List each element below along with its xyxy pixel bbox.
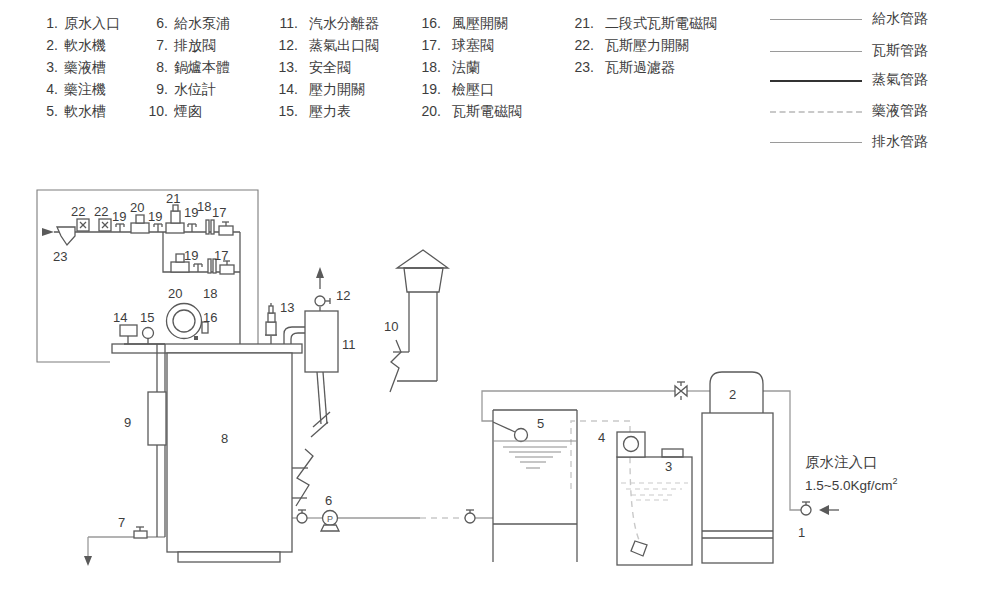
callout-7: 7 bbox=[118, 515, 125, 530]
steam-outlet-valve bbox=[315, 296, 325, 306]
legend-item-label: 二段式瓦斯電磁閥 bbox=[605, 12, 717, 34]
legend-item: 6.給水泵浦 bbox=[138, 12, 230, 34]
callout-20: 20 bbox=[168, 286, 182, 301]
legend-item-number: 6. bbox=[138, 12, 168, 34]
callout-20: 20 bbox=[130, 200, 144, 215]
legend-item: 1.原水入口 bbox=[28, 12, 120, 34]
raw-water-inlet-title: 原水注入口 bbox=[805, 453, 878, 472]
legend-item-number: 1. bbox=[28, 12, 58, 34]
legend-item: 20.瓦斯電磁閥 bbox=[407, 100, 522, 122]
legend-item-label: 藥注機 bbox=[64, 78, 106, 100]
callout-16: 16 bbox=[203, 310, 217, 325]
callout-23: 23 bbox=[53, 249, 67, 264]
legend-item: 23.瓦斯過濾器 bbox=[560, 56, 717, 78]
gas-solenoid-valve bbox=[131, 215, 149, 233]
legend-item-label: 鍋爐本體 bbox=[174, 56, 230, 78]
pressure-gauge bbox=[143, 328, 154, 339]
legend-item: 22.瓦斯壓力開關 bbox=[560, 34, 717, 56]
legend-item: 19.檢壓口 bbox=[407, 78, 522, 100]
legend-item: 3.藥液槽 bbox=[28, 56, 120, 78]
legend-item-number: 13. bbox=[264, 56, 298, 78]
test-port bbox=[194, 264, 202, 272]
legend-item-label: 瓦斯壓力開關 bbox=[605, 34, 689, 56]
legend-item-number: 3. bbox=[28, 56, 58, 78]
callout-18: 18 bbox=[203, 286, 217, 301]
legend-item: 4.藥注機 bbox=[28, 78, 120, 100]
callout-5: 5 bbox=[537, 416, 544, 431]
legend-item-label: 檢壓口 bbox=[452, 78, 494, 100]
legend-item-number: 22. bbox=[560, 34, 594, 56]
callout-3: 3 bbox=[665, 459, 672, 474]
suction-foot-valve bbox=[631, 541, 647, 556]
legend-item: 21.二段式瓦斯電磁閥 bbox=[560, 12, 717, 34]
float-lever bbox=[493, 422, 515, 432]
legend-item-number: 9. bbox=[138, 78, 168, 100]
steam-out-arrow bbox=[316, 267, 324, 278]
chemical-tank bbox=[617, 432, 692, 565]
legend-column: 21.二段式瓦斯電磁閥22.瓦斯壓力開關23.瓦斯過濾器 bbox=[560, 12, 717, 78]
callout-6: 6 bbox=[325, 493, 332, 508]
legend-item: 5.軟水槽 bbox=[28, 100, 120, 122]
callout-8: 8 bbox=[221, 431, 228, 446]
legend-item-label: 法蘭 bbox=[452, 56, 480, 78]
legend-item-label: 煙囪 bbox=[174, 100, 202, 122]
legend-item: 15.壓力表 bbox=[264, 100, 379, 122]
legend-item-number: 17. bbox=[407, 34, 441, 56]
callout-18: 18 bbox=[197, 199, 211, 214]
legend-item-number: 12. bbox=[264, 34, 298, 56]
callout-22: 22 bbox=[71, 204, 85, 219]
callout-2: 2 bbox=[729, 387, 736, 402]
legend-item-label: 水位計 bbox=[174, 78, 216, 100]
boiler-body bbox=[167, 353, 292, 552]
legend-column: 16.風壓開關17.球塞閥18.法蘭19.檢壓口20.瓦斯電磁閥 bbox=[407, 12, 522, 122]
legend-item-number: 18. bbox=[407, 56, 441, 78]
callout-19: 19 bbox=[184, 248, 198, 263]
legend-item: 10.煙囪 bbox=[138, 100, 230, 122]
raw-water-inlet bbox=[801, 502, 839, 515]
gas-inlet-arrow bbox=[42, 228, 54, 236]
test-port bbox=[116, 224, 124, 232]
boiler-piping-diagram-page: P bbox=[0, 0, 981, 612]
legend-item-label: 軟水槽 bbox=[64, 100, 106, 122]
line-legend-label: 瓦斯管路 bbox=[872, 42, 928, 60]
water-level-column bbox=[134, 344, 166, 538]
chemical-line-sample bbox=[770, 111, 862, 113]
legend-item-label: 壓力表 bbox=[309, 100, 351, 122]
callout-15: 15 bbox=[140, 310, 154, 325]
gas-line-sample bbox=[770, 51, 862, 52]
callout-19: 19 bbox=[148, 209, 162, 224]
legend-item-label: 蒸氣出口閥 bbox=[309, 34, 379, 56]
gas-pressure-switch bbox=[77, 219, 89, 231]
callout-14: 14 bbox=[113, 310, 127, 325]
line-legend-label: 排水管路 bbox=[872, 133, 928, 151]
check-valve bbox=[297, 513, 307, 523]
legend-item: 18.法蘭 bbox=[407, 56, 522, 78]
chimney-break bbox=[390, 340, 401, 392]
legend-item-number: 5. bbox=[28, 100, 58, 122]
gas-pressure-switch bbox=[99, 219, 111, 231]
test-port bbox=[154, 224, 162, 232]
callout-10: 10 bbox=[384, 319, 398, 334]
line-legend-label: 蒸氣管路 bbox=[872, 71, 928, 89]
legend-column: 11.汽水分離器12.蒸氣出口閥13.安全閥14.壓力開關15.壓力表 bbox=[264, 12, 379, 122]
callout-4: 4 bbox=[598, 430, 605, 445]
drain-line-sample bbox=[770, 142, 862, 143]
callout-22: 22 bbox=[94, 204, 108, 219]
feed-pump-group: P bbox=[297, 510, 475, 531]
boiler-base bbox=[178, 552, 280, 562]
legend-item: 11.汽水分離器 bbox=[264, 12, 379, 34]
legend-item-label: 汽水分離器 bbox=[309, 12, 379, 34]
steam-line-sample bbox=[770, 80, 862, 82]
feed-valve bbox=[465, 513, 475, 523]
float-ball bbox=[515, 429, 528, 442]
chimney bbox=[390, 250, 448, 392]
inlet-valve bbox=[801, 505, 811, 515]
legend-item-label: 原水入口 bbox=[64, 12, 120, 34]
chemical-dosing-pump bbox=[617, 432, 645, 457]
callout-11: 11 bbox=[342, 337, 356, 352]
legend-item-label: 軟水機 bbox=[64, 34, 106, 56]
legend-item-label: 排放閥 bbox=[174, 34, 216, 56]
legend-item-number: 15. bbox=[264, 100, 298, 122]
legend-item-label: 壓力開關 bbox=[309, 78, 365, 100]
legend-item: 17.球塞閥 bbox=[407, 34, 522, 56]
feedwater-line-sample bbox=[770, 19, 862, 20]
water-softener bbox=[675, 372, 773, 563]
water-level-gauge bbox=[148, 392, 166, 445]
pressure-instruments bbox=[120, 325, 165, 344]
line-legend-label: 藥液管路 bbox=[872, 102, 928, 120]
legend-item-label: 球塞閥 bbox=[452, 34, 494, 56]
boiler bbox=[112, 344, 313, 562]
legend-item-number: 4. bbox=[28, 78, 58, 100]
legend-column: 6.給水泵浦7.排放閥8.鍋爐本體9.水位計10.煙囪 bbox=[138, 12, 230, 122]
inlet-arrow bbox=[819, 505, 829, 515]
legend-item-number: 10. bbox=[138, 100, 168, 122]
line-legend-label: 給水管路 bbox=[872, 10, 928, 28]
legend-item-label: 瓦斯電磁閥 bbox=[452, 100, 522, 122]
soft-water-tank bbox=[493, 410, 577, 562]
pressure-value: 1.5~5.0Kgf/cm bbox=[805, 478, 892, 493]
callout-17: 17 bbox=[214, 248, 228, 263]
legend-item-number: 14. bbox=[264, 78, 298, 100]
callout-19: 19 bbox=[112, 209, 126, 224]
legend-item-number: 7. bbox=[138, 34, 168, 56]
legend-item-label: 給水泵浦 bbox=[174, 12, 230, 34]
globe-valve bbox=[675, 382, 687, 400]
legend-item-label: 安全閥 bbox=[309, 56, 351, 78]
legend-item: 7.排放閥 bbox=[138, 34, 230, 56]
legend-item-number: 20. bbox=[407, 100, 441, 122]
blower bbox=[167, 304, 209, 341]
legend-item: 12.蒸氣出口閥 bbox=[264, 34, 379, 56]
legend-item-number: 21. bbox=[560, 12, 594, 34]
legend-item-label: 藥液槽 bbox=[64, 56, 106, 78]
callout-1: 1 bbox=[798, 525, 805, 540]
legend-item: 16.風壓開關 bbox=[407, 12, 522, 34]
test-port bbox=[188, 224, 196, 232]
two-stage-gas-solenoid-valve bbox=[166, 205, 184, 233]
legend-column: 1.原水入口2.軟水機3.藥液槽4.藥注機5.軟水槽 bbox=[28, 12, 120, 122]
legend-item-number: 11. bbox=[264, 12, 298, 34]
gas-filter bbox=[57, 227, 75, 245]
legend-item: 2.軟水機 bbox=[28, 34, 120, 56]
pressure-switch bbox=[120, 325, 137, 336]
legend-item: 8.鍋爐本體 bbox=[138, 56, 230, 78]
legend-item-label: 風壓開關 bbox=[452, 12, 508, 34]
boiler-top-plate bbox=[112, 344, 302, 353]
legend-item: 13.安全閥 bbox=[264, 56, 379, 78]
legend-item-number: 16. bbox=[407, 12, 441, 34]
legend-item-label: 瓦斯過濾器 bbox=[605, 56, 675, 78]
legend-item-number: 8. bbox=[138, 56, 168, 78]
pressure-exponent: 2 bbox=[892, 476, 897, 486]
callout-12: 12 bbox=[336, 288, 350, 303]
legend-item-number: 19. bbox=[407, 78, 441, 100]
legend-item: 9.水位計 bbox=[138, 78, 230, 100]
legend-item-number: 23. bbox=[560, 56, 594, 78]
callout-21: 21 bbox=[166, 191, 180, 206]
callout-13: 13 bbox=[280, 300, 294, 315]
ball-valve bbox=[219, 222, 233, 235]
pump-letter: P bbox=[327, 514, 333, 524]
legend-item-number: 2. bbox=[28, 34, 58, 56]
inlet-pressure-range: 1.5~5.0Kgf/cm2 bbox=[805, 476, 897, 493]
legend-item: 14.壓力開關 bbox=[264, 78, 379, 100]
callout-17: 17 bbox=[212, 205, 226, 220]
callout-9: 9 bbox=[124, 415, 131, 430]
drain-valve bbox=[134, 531, 147, 538]
safety-valve bbox=[265, 303, 277, 344]
